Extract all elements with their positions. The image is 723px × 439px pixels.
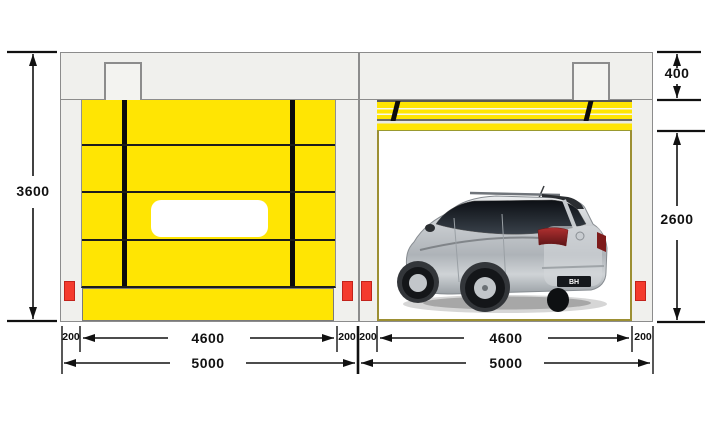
right-motor-box	[572, 62, 610, 100]
car-plate-text: BH	[569, 279, 579, 286]
dim-label-side-margin: 200	[356, 331, 380, 343]
car-far-wheel	[547, 288, 569, 312]
car-logo	[576, 232, 584, 240]
curtain-bottom-bar	[82, 288, 334, 321]
rolled-up-curtain	[377, 100, 632, 131]
photo-sensor	[361, 281, 372, 301]
dim-label-side-margin: 200	[59, 331, 83, 343]
curtain-seam-line	[82, 144, 335, 146]
curtain-strap	[122, 100, 127, 286]
car-mirror	[425, 224, 435, 232]
curtain-seam-line	[82, 239, 335, 241]
car-rear-hub	[482, 285, 488, 291]
dim-label-clear-width-left: 4600	[179, 330, 237, 346]
curtain-vision-window	[151, 200, 268, 237]
dim-label-clear-width-right: 4600	[477, 330, 535, 346]
car-taillight-left	[538, 228, 568, 246]
photo-sensor	[342, 281, 353, 301]
center-divider-column	[358, 52, 360, 322]
dim-label-side-margin: 200	[631, 331, 655, 343]
curtain-strap	[391, 101, 401, 121]
rapid-door-diagram: BH	[0, 0, 723, 439]
car-front-rim	[409, 274, 427, 292]
photo-sensor	[635, 281, 646, 301]
suv-photo: BH	[392, 176, 614, 316]
dim-label-header-height: 400	[657, 65, 697, 81]
photo-sensor	[64, 281, 75, 301]
dim-label-unit-width-right: 5000	[479, 355, 533, 371]
curtain-strap	[584, 101, 594, 121]
left-door-curtain-closed	[81, 100, 336, 288]
left-motor-box	[104, 62, 142, 100]
dim-label-clear-height: 2600	[653, 211, 701, 227]
curtain-seam-line	[82, 191, 335, 193]
curtain-strap	[290, 100, 295, 286]
lintel-beam	[60, 52, 653, 100]
dim-label-wall-height: 3600	[11, 183, 55, 199]
dim-label-unit-width-left: 5000	[181, 355, 235, 371]
